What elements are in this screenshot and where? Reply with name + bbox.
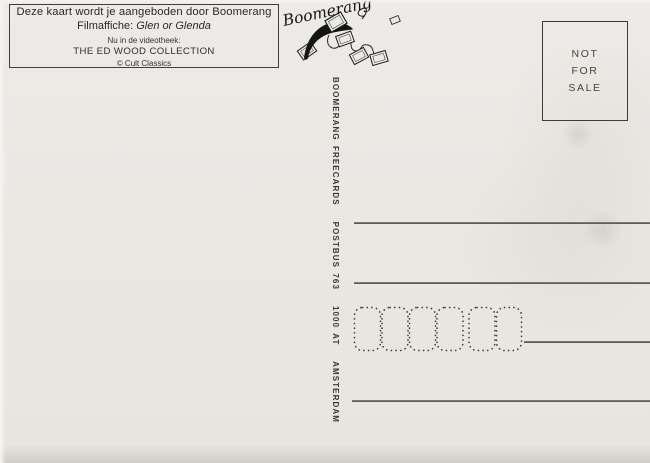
postcode-cell [497, 308, 522, 351]
postcode-boxes [353, 306, 523, 353]
flying-card-icon [390, 16, 401, 25]
info-box: Deze kaart wordt je aangeboden door Boom… [9, 4, 279, 68]
paper-stain [560, 120, 596, 148]
stamp-box: NOT FOR SALE [542, 21, 628, 121]
address-line-3 [524, 341, 650, 343]
postcard-back: Deze kaart wordt je aangeboden door Boom… [0, 0, 650, 463]
film-affiche-line: Filmaffiche: Glen or Glenda [77, 19, 211, 33]
postcode-cell [410, 308, 436, 351]
postcode-cell [469, 308, 495, 351]
brand-logo: Boomerang [283, 1, 405, 75]
spine-text: BOOMERANG FREECARDS POSTBUS 763 1000 AT … [328, 77, 340, 415]
postcode-cell [355, 308, 381, 351]
film-affiche-label: Filmaffiche: [77, 20, 136, 32]
flying-card-icon [336, 31, 355, 47]
stamp-line: SALE [568, 80, 601, 97]
film-title: Glen or Glenda [136, 20, 211, 32]
collection-line: THE ED WOOD COLLECTION [73, 46, 215, 58]
copyright-line: © Cult Classics [117, 58, 171, 69]
stamp-line: NOT [572, 46, 599, 63]
flying-card-icon [370, 51, 388, 66]
stamp-line: FOR [572, 63, 599, 80]
address-line-2 [354, 282, 650, 284]
postcode-cell [382, 308, 408, 351]
promo-line: Deze kaart wordt je aangeboden door Boom… [16, 5, 271, 19]
flying-card-icon [349, 47, 368, 64]
address-line-4 [352, 400, 650, 402]
paper-stain [580, 212, 626, 248]
postcode-cell [437, 308, 463, 351]
address-line-1 [354, 222, 650, 224]
videotheek-line: Nu in de videotheek: [108, 35, 181, 46]
